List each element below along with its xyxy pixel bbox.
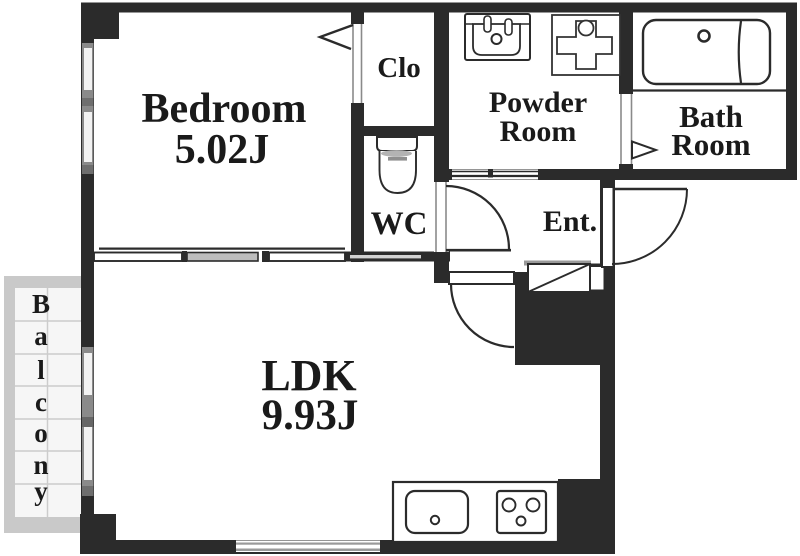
svg-text:Clo: Clo <box>377 52 421 84</box>
svg-text:c: c <box>35 387 47 417</box>
svg-text:a: a <box>34 321 48 351</box>
svg-text:WC: WC <box>371 206 428 242</box>
svg-text:Ent.: Ent. <box>543 205 597 238</box>
svg-text:5.02J: 5.02J <box>175 127 270 173</box>
svg-text:9.93J: 9.93J <box>262 392 359 439</box>
svg-text:Bedroom: Bedroom <box>142 86 307 132</box>
svg-text:y: y <box>34 476 48 506</box>
svg-text:B: B <box>32 289 50 319</box>
svg-text:Room: Room <box>500 115 577 148</box>
svg-text:o: o <box>34 418 48 448</box>
svg-text:Room: Room <box>671 127 750 162</box>
svg-text:l: l <box>37 355 45 385</box>
